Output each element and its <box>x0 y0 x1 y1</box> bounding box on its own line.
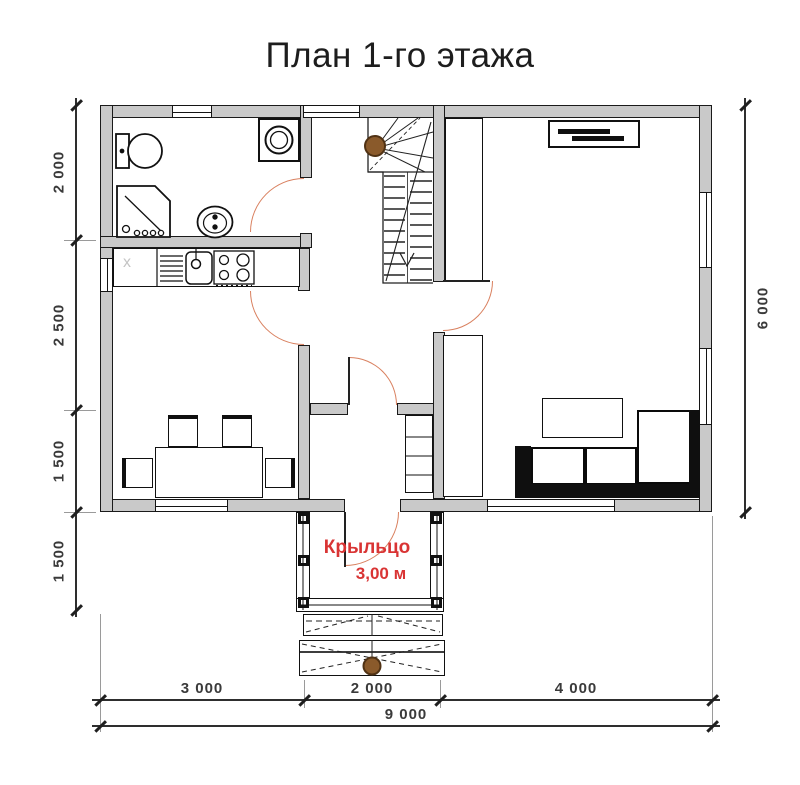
extension-line <box>304 680 305 708</box>
kitchen-counter <box>113 248 300 287</box>
door-arc-bathroom <box>250 178 304 232</box>
dimension-line-bottom-total <box>92 725 720 726</box>
door-arc-tambour <box>349 357 397 405</box>
wall-right <box>699 105 712 512</box>
shower-cabin <box>117 186 170 237</box>
wall-tambour-left <box>310 403 348 415</box>
window-kitchen-left <box>100 258 113 292</box>
window-living-right-upper <box>699 192 712 268</box>
porch-wall-bottom <box>296 598 444 612</box>
extension-line <box>64 512 96 513</box>
porch-post <box>298 597 309 608</box>
extension-line <box>440 680 441 708</box>
dining-chair <box>168 415 198 447</box>
dining-chair <box>265 458 295 488</box>
sofa-back <box>515 484 700 498</box>
kitchen-empty-cabinet-label: x <box>123 254 131 272</box>
dimension-label: 6 000 <box>755 287 772 330</box>
door-arc-living <box>443 281 493 331</box>
wall-left <box>100 105 113 512</box>
wall-bathroom-right-lower <box>300 233 312 248</box>
window-living-right-lower <box>699 348 712 425</box>
porch-post <box>431 555 442 566</box>
porch-step-lower <box>299 640 445 676</box>
dimension-label: 1 500 <box>51 540 68 583</box>
closet-by-stairs <box>445 118 483 281</box>
extension-line <box>100 614 101 732</box>
toilet <box>116 134 162 168</box>
dimension-label: 2 000 <box>351 680 394 697</box>
dining-chair <box>222 415 252 447</box>
dimension-label: 9 000 <box>385 706 428 723</box>
window-bathroom-top <box>172 105 212 118</box>
window-living-bottom <box>487 499 615 512</box>
window-dining-bottom <box>155 499 228 512</box>
porch-step-upper <box>303 614 443 636</box>
bathroom-sink <box>198 207 233 238</box>
door-leaf-tambour <box>348 357 350 405</box>
door-arc-kitchen <box>250 291 304 345</box>
sliding-door-symbol <box>558 129 610 134</box>
wardrobe <box>443 335 483 497</box>
floor-plan-canvas: План 1-го этажа x <box>0 0 800 785</box>
sliding-door-symbol <box>572 136 624 141</box>
shoe-rack <box>405 415 433 493</box>
porch-post <box>431 513 442 524</box>
wall-kitchen-hall-lower <box>298 345 310 499</box>
page-title: План 1-го этажа <box>266 36 535 76</box>
porch-post <box>298 513 309 524</box>
dimension-label: 1 500 <box>51 440 68 483</box>
porch-area-label: 3,00 м <box>356 564 406 584</box>
porch-post <box>298 555 309 566</box>
stairs <box>368 118 433 283</box>
dimension-line-left <box>75 98 76 617</box>
window-hall-top <box>303 105 360 118</box>
washing-machine <box>258 118 300 162</box>
newel-post <box>365 136 385 156</box>
dimension-line-bottom-segments <box>92 699 720 700</box>
door-leaf-living <box>443 280 490 282</box>
dimension-label: 2 000 <box>51 151 68 194</box>
wall-living-left-upper <box>433 105 445 282</box>
dimension-label: 4 000 <box>555 680 598 697</box>
sofa-cushion <box>585 447 637 485</box>
dining-chair <box>122 458 153 488</box>
top-wall-closet <box>548 120 640 148</box>
wall-bathroom-bottom <box>100 236 312 248</box>
dimension-label: 3 000 <box>181 680 224 697</box>
wall-tambour-right <box>397 403 437 415</box>
sofa-cushion <box>531 447 585 485</box>
extension-line <box>64 410 96 411</box>
sofa-corner-module <box>637 410 691 484</box>
extension-line <box>64 240 96 241</box>
coffee-table <box>542 398 623 438</box>
dimension-line-right <box>744 98 745 519</box>
dining-table <box>155 447 263 498</box>
dimension-label: 2 500 <box>51 304 68 347</box>
porch-post <box>431 597 442 608</box>
porch-label: Крыльцо <box>324 537 410 559</box>
